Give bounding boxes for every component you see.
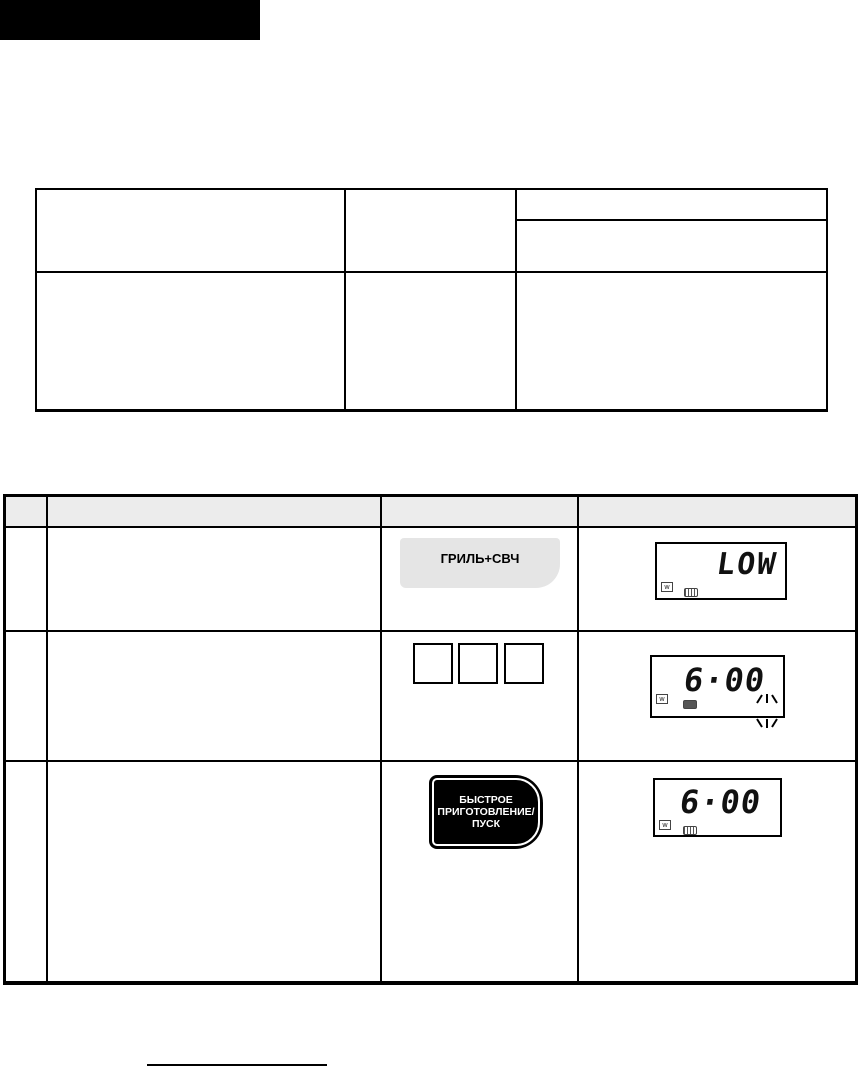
lcd-display-step1: LOW w (655, 542, 787, 600)
microwave-power-icon: w (656, 694, 668, 704)
manual-page: ГРИЛЬ+СВЧ LOW w 6·00 w (0, 0, 862, 1069)
reference-table-border-top (35, 188, 828, 190)
grill-icon (683, 826, 697, 835)
reference-table-border-bottom (35, 409, 828, 412)
quick-cook-start-label-line1: БЫСТРОЕ (459, 794, 513, 806)
steps-table-border-right (855, 494, 858, 985)
steps-table-header-row (3, 494, 858, 528)
lcd-power-level-readout: LOW (714, 547, 779, 582)
reference-table-row-divider (35, 271, 828, 273)
quick-cook-start-label-line3: ПУСК (472, 818, 500, 830)
grill-icon (683, 700, 697, 709)
lcd-time-readout: 6·00 (677, 783, 763, 821)
reference-table-border-right (826, 188, 828, 412)
number-key (413, 643, 453, 684)
number-key (504, 643, 544, 684)
quick-cook-start-label-line2: ПРИГОТОВЛЕНИЕ/ (437, 806, 534, 818)
lcd-display-step3: 6·00 w (653, 778, 782, 837)
quick-cook-start-button-face: БЫСТРОЕ ПРИГОТОВЛЕНИЕ/ ПУСК (432, 778, 540, 846)
microwave-power-icon: w (659, 820, 671, 830)
reference-table-col-divider-1 (344, 188, 346, 412)
steps-table-border-bottom (3, 981, 858, 985)
steps-table-border-top (3, 494, 858, 497)
grill-plus-microwave-button-label: ГРИЛЬ+СВЧ (441, 551, 520, 566)
footnote-rule (147, 1064, 327, 1066)
reference-table-col-divider-2 (515, 188, 517, 412)
lcd-display-step2: 6·00 w (650, 655, 785, 718)
reference-table-header-subdivider (515, 219, 828, 221)
number-key (458, 643, 498, 684)
grill-plus-microwave-button: ГРИЛЬ+СВЧ (400, 538, 560, 588)
steps-table-row-divider-2 (3, 760, 858, 762)
steps-table-col-divider-step (46, 494, 48, 985)
microwave-power-icon: w (661, 582, 673, 592)
grill-icon (684, 588, 698, 597)
steps-table-col-divider-instruction (380, 494, 382, 985)
sparkle-icon (754, 691, 780, 731)
steps-table-col-divider-button (577, 494, 579, 985)
steps-table-header-divider (3, 526, 858, 528)
steps-table-border-left (3, 494, 6, 985)
steps-table-row-divider-1 (3, 630, 858, 632)
section-title-banner (0, 0, 260, 40)
quick-cook-start-button: БЫСТРОЕ ПРИГОТОВЛЕНИЕ/ ПУСК (429, 775, 543, 849)
reference-table-border-left (35, 188, 37, 412)
